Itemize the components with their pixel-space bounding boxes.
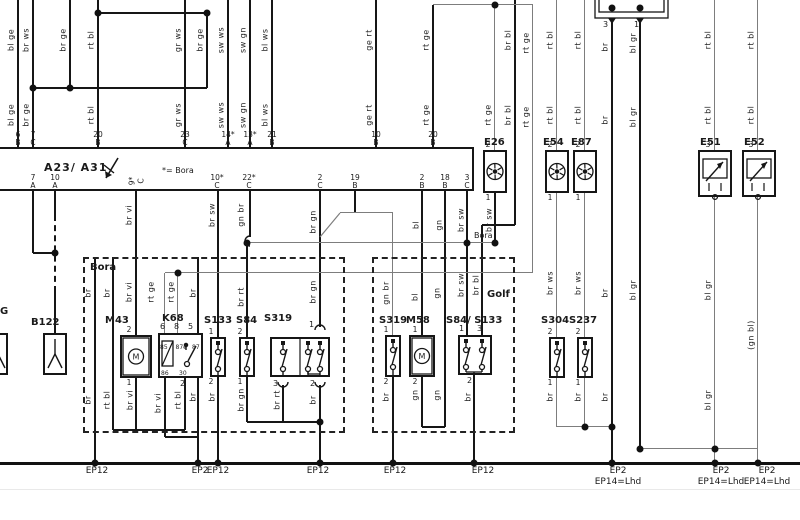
diagram-text[interactable]: *= Bora <box>162 166 194 175</box>
pin-letter[interactable]: B <box>419 182 424 189</box>
pin-number[interactable]: 1 <box>127 379 132 386</box>
wire[interactable] <box>97 0 99 147</box>
wire[interactable] <box>69 0 71 88</box>
pin-number[interactable]: 2 <box>413 378 418 385</box>
divider-line[interactable] <box>0 489 800 490</box>
wire-color-label[interactable]: br <box>382 392 391 401</box>
diagram-text[interactable]: 2 <box>180 379 185 388</box>
wire-color-label[interactable]: bl gr <box>704 390 713 411</box>
wire-color-label[interactable]: br ge <box>22 103 31 126</box>
ground-label[interactable]: EP12 <box>384 466 407 476</box>
component-box-M58[interactable] <box>409 335 435 377</box>
junction-dot[interactable] <box>464 240 471 247</box>
ground-label[interactable]: EP2 <box>759 466 776 476</box>
pin-number[interactable]: 2 <box>486 141 491 148</box>
junction-dot[interactable] <box>637 446 644 453</box>
junction-dot[interactable] <box>582 424 589 431</box>
junction-dot[interactable] <box>95 10 102 17</box>
pin-letter[interactable]: B <box>430 139 435 146</box>
diagram-text[interactable]: 3 <box>477 324 482 333</box>
wire-color-label[interactable]: br sw <box>457 273 466 297</box>
wire[interactable] <box>271 0 273 147</box>
wire-color-label[interactable]: rt bl <box>546 31 555 50</box>
wire-color-label[interactable]: br rt <box>237 287 246 307</box>
pin-number[interactable]: 2 <box>127 326 132 333</box>
wire[interactable] <box>165 436 198 438</box>
pin-number[interactable]: 3 <box>465 174 470 181</box>
component-label-S237[interactable]: S237 <box>569 315 597 326</box>
ground-label[interactable]: EP12 <box>472 466 495 476</box>
wire-color-label[interactable]: br gn <box>309 280 318 304</box>
component-box-E26[interactable] <box>483 150 507 193</box>
pin-letter[interactable]: C <box>138 178 145 183</box>
pin-number[interactable]: 2 <box>318 174 323 181</box>
wire-color-label[interactable]: rt bl <box>704 31 713 50</box>
wire-color-label[interactable]: gn <box>433 389 442 400</box>
wire-color-label[interactable]: rt bl <box>546 106 555 125</box>
junction-dot[interactable] <box>30 85 37 92</box>
pin-letter[interactable]: B <box>15 139 20 146</box>
pin-number[interactable]: 1 <box>238 378 243 385</box>
pin-number[interactable]: 10* <box>210 174 223 181</box>
component-label-E87[interactable]: E87 <box>571 137 592 148</box>
wire[interactable] <box>611 18 613 463</box>
pin-letter[interactable]: B <box>352 182 357 189</box>
component-box-S319-golf[interactable] <box>385 335 401 377</box>
pin-number[interactable]: 10 <box>50 174 60 181</box>
wire[interactable] <box>354 191 356 213</box>
junction-dot[interactable] <box>637 5 644 12</box>
wire-color-label[interactable]: br <box>189 392 198 401</box>
wire[interactable] <box>32 191 34 253</box>
wire-color-label[interactable]: bl <box>411 293 420 301</box>
wire-color-label[interactable]: br <box>208 392 217 401</box>
wire-color-label[interactable]: gn <box>435 219 444 230</box>
wire-color-label[interactable]: gr ws <box>174 103 183 127</box>
wire-color-label[interactable]: rt ge <box>422 104 431 125</box>
component-box-E87[interactable] <box>573 150 597 193</box>
component-box-S84-S133[interactable] <box>458 335 492 375</box>
wire-color-label[interactable]: sw ws <box>217 27 226 53</box>
pin-number[interactable]: 7 <box>31 131 36 138</box>
wire-color-label[interactable]: br sw <box>457 208 466 232</box>
pin-letter[interactable]: B <box>373 139 378 146</box>
wire-color-label[interactable]: bl gr <box>629 280 638 301</box>
component-box-S304[interactable] <box>549 337 565 378</box>
wire-color-label[interactable]: bl ge <box>7 104 16 126</box>
wire-color-label[interactable]: (gn bl) <box>747 320 756 350</box>
diagram-text[interactable]: Bora <box>474 231 493 240</box>
wire-color-label[interactable]: br <box>546 392 555 401</box>
wire[interactable] <box>227 0 229 147</box>
wire[interactable] <box>494 193 496 243</box>
pin-number[interactable]: 2 <box>548 141 553 148</box>
wire-color-label[interactable]: br <box>84 288 93 297</box>
wire-color-label[interactable]: rt bl <box>87 31 96 50</box>
pin-letter[interactable]: B <box>95 139 100 146</box>
wire[interactable] <box>432 5 434 147</box>
component-label-S84[interactable]: S84 <box>236 315 257 326</box>
junction-dot[interactable] <box>492 240 499 247</box>
component-label-K68[interactable]: K68 <box>162 313 184 324</box>
component-label-S304[interactable]: S304 <box>541 315 569 326</box>
pin-number[interactable]: 6 <box>16 131 21 138</box>
pin-number[interactable]: 9* <box>129 177 136 186</box>
wire[interactable] <box>757 197 758 463</box>
component-box-E54[interactable] <box>545 150 569 193</box>
diagram-text[interactable]: 3 <box>603 20 608 29</box>
wire[interactable] <box>640 448 758 449</box>
diagram-text[interactable]: 6 <box>160 322 165 331</box>
pin-letter[interactable]: A <box>247 139 252 146</box>
component-label-S133[interactable]: S133 <box>204 315 232 326</box>
wire[interactable] <box>757 0 758 150</box>
component-box-G-part[interactable] <box>0 333 8 375</box>
ground-variant-label[interactable]: EP14=Lhd <box>744 477 791 487</box>
junction-dot[interactable] <box>52 250 59 257</box>
wire[interactable] <box>556 378 557 427</box>
wire[interactable] <box>714 0 715 150</box>
component-box-S133[interactable] <box>210 337 226 377</box>
wire-color-label[interactable]: bl ws <box>261 28 270 51</box>
junction-dot[interactable] <box>492 2 499 9</box>
wire-color-label[interactable]: rt bl <box>574 106 583 125</box>
component-box-S237[interactable] <box>577 337 593 378</box>
component-label-E54[interactable]: E54 <box>543 137 564 148</box>
pin-number[interactable]: 23 <box>180 131 190 138</box>
component-box-E52[interactable] <box>742 150 776 197</box>
diagram-text[interactable]: 2 <box>467 376 472 385</box>
wire[interactable] <box>494 5 495 150</box>
wire-color-label[interactable]: rt bl <box>704 106 713 125</box>
wire[interactable] <box>249 191 251 237</box>
pin-letter[interactable]: A <box>52 182 57 189</box>
wire[interactable] <box>514 0 516 225</box>
wire[interactable] <box>433 4 533 5</box>
pin-number[interactable]: 13* <box>243 131 256 138</box>
wire[interactable] <box>32 0 34 147</box>
ground-rail[interactable] <box>0 462 800 465</box>
wire[interactable] <box>639 18 641 449</box>
wire-color-label[interactable]: gn br <box>382 281 391 305</box>
junction-dot[interactable] <box>712 446 719 453</box>
wire[interactable] <box>584 378 585 427</box>
component-label-B122[interactable]: B122 <box>31 317 60 328</box>
pin-number[interactable]: 1 <box>486 194 491 201</box>
pin-number[interactable]: 7 <box>31 174 36 181</box>
wire-color-label[interactable]: br bl <box>504 105 513 126</box>
wire-color-label[interactable]: rt ge <box>522 32 531 53</box>
pin-number[interactable]: 1 <box>209 328 214 335</box>
pin-number[interactable]: 2 <box>384 378 389 385</box>
wiring-diagram-canvas: 6B7C20B23C14*A13*A21B10B20B7A10A9*C10*C2… <box>0 0 800 520</box>
diagram-text[interactable]: Golf <box>487 289 510 300</box>
wire[interactable] <box>98 12 207 14</box>
component-box-S84[interactable] <box>239 337 255 377</box>
wire-color-label[interactable]: rt ge <box>422 29 431 50</box>
wire-color-label[interactable]: br bl <box>472 275 481 296</box>
pin-letter[interactable]: B <box>442 182 447 189</box>
ground-label[interactable]: EP12 <box>207 466 230 476</box>
ground-label[interactable]: EP12 <box>307 466 330 476</box>
wire-color-label[interactable]: br vi <box>125 282 134 302</box>
wire-color-label[interactable]: bl gr <box>704 280 713 301</box>
wire-color-label[interactable]: br rt <box>273 390 282 410</box>
component-box-E51[interactable] <box>698 150 732 197</box>
wire-color-label[interactable]: br ge <box>59 28 68 51</box>
wire-color-label[interactable]: br bl <box>504 30 513 51</box>
wire[interactable] <box>714 197 715 463</box>
component-box-M43[interactable] <box>120 335 152 378</box>
wire-color-label[interactable]: sw gn <box>239 102 248 128</box>
pin-number[interactable]: 2 <box>209 378 214 385</box>
pin-letter[interactable]: C <box>317 182 322 189</box>
diagram-text[interactable]: Bora <box>90 262 116 273</box>
wire-color-label[interactable]: rt ge <box>484 104 493 125</box>
ground-variant-label[interactable]: EP14=Lhd <box>698 477 745 487</box>
wire-color-label[interactable]: br gn <box>237 388 246 412</box>
pin-number[interactable]: 2 <box>548 328 553 335</box>
wire-color-label[interactable]: ge rt <box>365 104 374 125</box>
wire-color-label[interactable]: rt bl <box>747 106 756 125</box>
diagram-text[interactable]: G <box>0 306 8 317</box>
wire[interactable] <box>54 191 56 215</box>
pin-number[interactable]: 1 <box>413 326 418 333</box>
pin-letter[interactable]: C <box>214 182 219 189</box>
ground-label[interactable]: EP2 <box>610 466 627 476</box>
wire-color-label[interactable]: br <box>601 115 610 124</box>
pin-number[interactable]: 19 <box>350 174 360 181</box>
pin-number[interactable]: 2 <box>576 328 581 335</box>
wire-color-label[interactable]: br <box>601 392 610 401</box>
pin-letter[interactable]: C <box>30 139 35 146</box>
diagram-text[interactable]: 3 <box>273 379 278 388</box>
wire-color-label[interactable]: rt bl <box>574 31 583 50</box>
wire-color-label[interactable]: rt ge <box>167 281 176 302</box>
diagram-text[interactable]: 8 <box>174 322 179 331</box>
pin-number[interactable]: 10 <box>371 131 381 138</box>
wire-color-label[interactable]: gn br <box>237 203 246 227</box>
wire[interactable] <box>206 13 208 88</box>
pin-letter[interactable]: A <box>225 139 230 146</box>
pin-letter[interactable]: C <box>246 182 251 189</box>
wire-color-label[interactable]: br <box>601 288 610 297</box>
wire-color-label[interactable]: gr ws <box>174 28 183 52</box>
wire-color-label[interactable]: br vi <box>125 205 134 225</box>
component-label-E52[interactable]: E52 <box>744 137 765 148</box>
pin-number[interactable]: 2 <box>238 328 243 335</box>
pin-number[interactable]: 21 <box>267 131 277 138</box>
pin-number[interactable]: 20 <box>93 131 103 138</box>
pin-number[interactable]: 1 <box>576 379 581 386</box>
wire-color-label[interactable]: bl ws <box>261 103 270 126</box>
pin-letter[interactable]: A <box>30 182 35 189</box>
wire-color-label[interactable]: br <box>464 392 473 401</box>
pin-number[interactable]: 1 <box>384 326 389 333</box>
junction-dot[interactable] <box>204 10 211 17</box>
pin-number[interactable]: 3 <box>706 141 711 148</box>
pin-number[interactable]: 20 <box>428 131 438 138</box>
pin-number[interactable]: 1 <box>548 379 553 386</box>
junction-dot[interactable] <box>67 85 74 92</box>
wire-color-label[interactable]: rt bl <box>174 391 183 410</box>
pin-letter[interactable]: C <box>182 139 187 146</box>
wire-color-label[interactable]: br <box>84 395 93 404</box>
wire-color-label[interactable]: sw gn <box>239 27 248 53</box>
ground-variant-label[interactable]: EP14=Lhd <box>595 477 642 487</box>
ground-label[interactable]: EP2 <box>713 466 730 476</box>
wire[interactable] <box>375 0 377 147</box>
wire-color-label[interactable]: br sw <box>208 203 217 227</box>
pin-number[interactable]: 1 <box>576 194 581 201</box>
junction-dot[interactable] <box>244 240 251 247</box>
wire-color-label[interactable]: br vi <box>154 393 163 413</box>
wire-color-label[interactable]: br gn <box>309 210 318 234</box>
wire[interactable] <box>184 0 186 147</box>
wire-color-label[interactable]: br sw <box>485 208 494 232</box>
wire-color-label[interactable]: br <box>309 395 318 404</box>
wire[interactable] <box>584 0 585 150</box>
wire-color-label[interactable]: br <box>103 288 112 297</box>
pin-number[interactable]: 2 <box>420 174 425 181</box>
component-label-S319[interactable]: S319 <box>264 313 292 324</box>
wire-color-label[interactable]: sw ws <box>217 102 226 128</box>
wire-color-label[interactable]: rt ge <box>147 281 156 302</box>
wire-color-label[interactable]: ge rt <box>365 29 374 50</box>
junction-dot[interactable] <box>609 5 616 12</box>
wire-color-label[interactable]: rt ge <box>522 106 531 127</box>
wire-color-label[interactable]: br ws <box>546 271 555 295</box>
wire-color-label[interactable]: br ge <box>196 28 205 51</box>
component-label-M43[interactable]: M43 <box>105 315 129 326</box>
diagram-text[interactable]: 1 <box>459 324 464 333</box>
wire-color-label[interactable]: rt bl <box>103 391 112 410</box>
diagram-text[interactable]: 1 <box>634 20 639 29</box>
component-box-K68[interactable] <box>158 333 203 378</box>
wire[interactable] <box>340 212 393 213</box>
diagram-text[interactable]: 5 <box>188 322 193 331</box>
pin-number[interactable]: 18 <box>440 174 450 181</box>
pin-number[interactable]: 3 <box>749 141 754 148</box>
component-box-B122[interactable] <box>43 333 67 375</box>
wire[interactable] <box>249 0 251 147</box>
wire-color-label[interactable]: bl gr <box>629 33 638 54</box>
junction-dot[interactable] <box>175 270 182 277</box>
wire-color-label[interactable]: br <box>574 392 583 401</box>
junction-dot[interactable] <box>609 424 616 431</box>
wire-color-label[interactable]: bl ge <box>7 29 16 51</box>
wire[interactable] <box>17 0 19 147</box>
pin-number[interactable]: 22* <box>242 174 255 181</box>
wire-color-label[interactable]: bl <box>412 221 421 229</box>
component-label-M58[interactable]: M58 <box>406 315 430 326</box>
wire[interactable] <box>33 87 207 89</box>
wire-color-label[interactable]: rt bl <box>87 106 96 125</box>
component-label-S84-S133[interactable]: S84/ S133 <box>446 315 502 326</box>
junction-dot[interactable] <box>317 419 324 426</box>
wire-color-label[interactable]: gn <box>411 389 420 400</box>
wire-color-label[interactable]: gn <box>433 287 442 298</box>
wire-color-label[interactable]: br ws <box>22 28 31 52</box>
pin-number[interactable]: 14* <box>221 131 234 138</box>
ground-label[interactable]: EP12 <box>86 466 109 476</box>
wire-color-label[interactable]: br <box>601 42 610 51</box>
wire[interactable] <box>556 0 557 150</box>
wire-color-label[interactable]: br vi <box>126 390 135 410</box>
wire[interactable] <box>532 5 533 273</box>
pin-letter[interactable]: C <box>464 182 469 189</box>
component-box-S319[interactable] <box>270 337 330 377</box>
diagram-text[interactable]: 1 <box>309 320 314 329</box>
pin-number[interactable]: 1 <box>548 194 553 201</box>
wire-color-label[interactable]: br ws <box>574 271 583 295</box>
pin-letter[interactable]: B <box>269 139 274 146</box>
diagram-text[interactable]: A23/ A31 <box>44 161 108 174</box>
diagram-text[interactable]: 2 <box>310 379 315 388</box>
pin-number[interactable]: 2 <box>576 141 581 148</box>
wire-color-label[interactable]: bl gr <box>629 107 638 128</box>
wire[interactable] <box>250 242 495 243</box>
wire-color-label[interactable]: br <box>189 288 198 297</box>
wire-color-label[interactable]: rt bl <box>747 31 756 50</box>
